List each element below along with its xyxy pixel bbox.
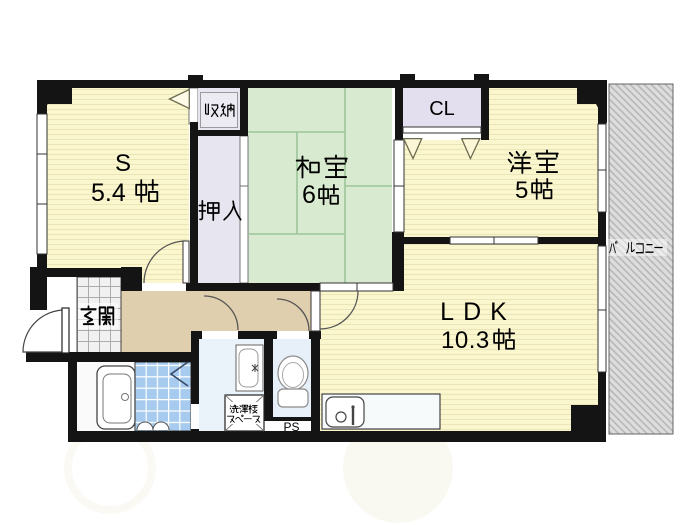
svg-text:PS: PS: [283, 420, 299, 434]
svg-text:5: 5: [515, 177, 528, 204]
svg-text:5.4: 5.4: [91, 179, 126, 207]
svg-text:CL: CL: [429, 98, 455, 120]
svg-text:6: 6: [302, 181, 316, 209]
svg-text:LDK: LDK: [440, 298, 516, 326]
svg-text:10.3: 10.3: [441, 327, 490, 354]
svg-text:S: S: [115, 150, 131, 177]
